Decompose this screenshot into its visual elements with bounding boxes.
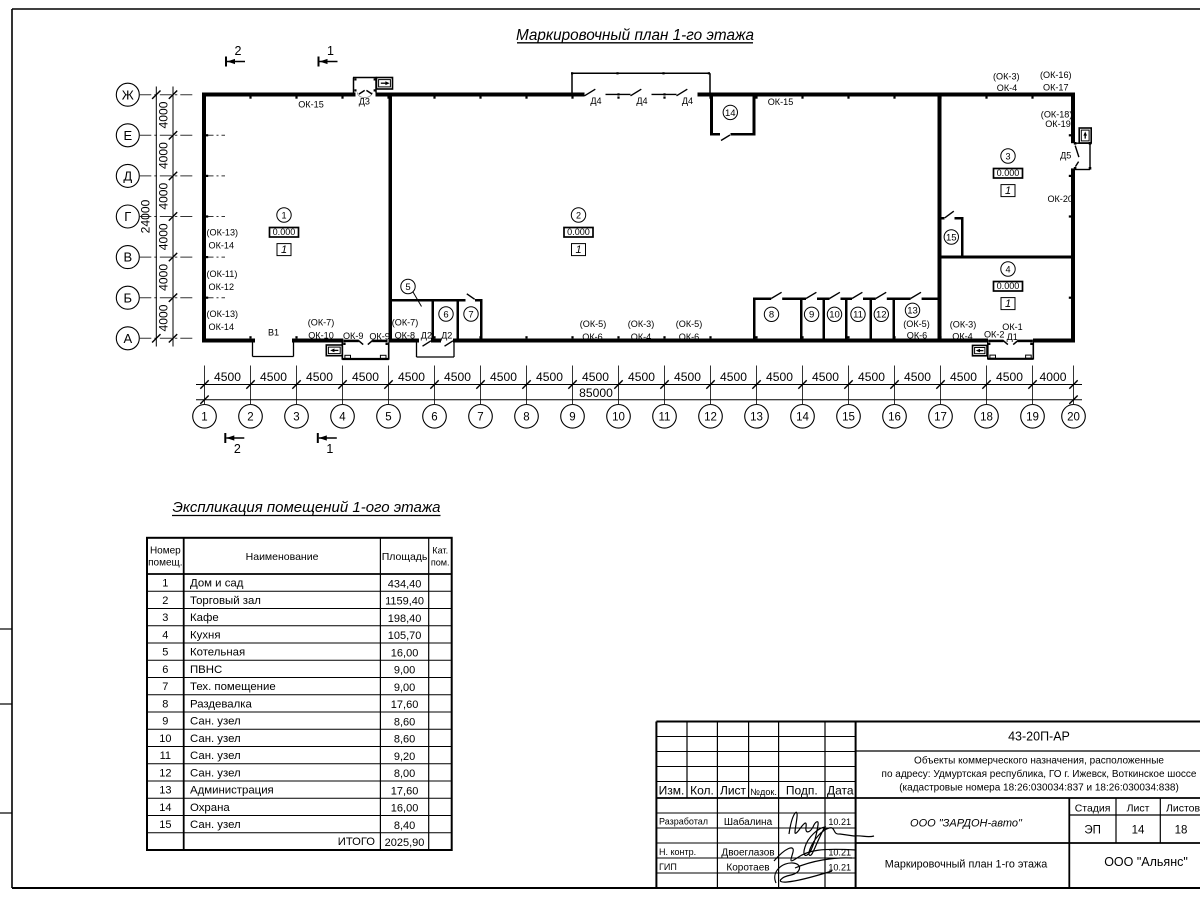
svg-text:Охрана: Охрана <box>190 802 230 814</box>
svg-text:4500: 4500 <box>628 370 655 384</box>
svg-text:8,60: 8,60 <box>394 734 415 746</box>
svg-text:4000: 4000 <box>156 304 170 331</box>
svg-text:ОК-4: ОК-4 <box>997 83 1017 93</box>
svg-text:3: 3 <box>162 612 168 624</box>
svg-text:4: 4 <box>339 411 346 423</box>
svg-text:43-20П-АР: 43-20П-АР <box>1008 730 1070 744</box>
svg-text:16: 16 <box>888 411 901 423</box>
svg-text:(ОК-3): (ОК-3) <box>993 72 1020 82</box>
svg-text:Д3: Д3 <box>359 96 370 106</box>
svg-text:4000: 4000 <box>156 264 170 291</box>
svg-text:Д4: Д4 <box>636 96 647 106</box>
svg-text:ОК-6: ОК-6 <box>582 332 602 342</box>
svg-text:0.000: 0.000 <box>273 227 296 237</box>
svg-text:20: 20 <box>1067 411 1080 423</box>
svg-text:105,70: 105,70 <box>388 630 422 642</box>
svg-text:Подп.: Подп. <box>786 784 818 798</box>
svg-text:15: 15 <box>159 819 171 831</box>
svg-text:4500: 4500 <box>444 370 471 384</box>
svg-text:2: 2 <box>576 210 581 220</box>
svg-text:Наименование: Наименование <box>246 551 319 563</box>
svg-text:(ОК-3): (ОК-3) <box>628 319 655 329</box>
svg-text:1: 1 <box>162 578 168 590</box>
svg-text:4500: 4500 <box>720 370 747 384</box>
svg-text:Д2: Д2 <box>441 330 452 340</box>
svg-text:11: 11 <box>160 750 171 762</box>
svg-text:17,60: 17,60 <box>391 699 419 711</box>
svg-text:4500: 4500 <box>352 370 379 384</box>
svg-text:ЭП: ЭП <box>1084 825 1101 837</box>
svg-text:5: 5 <box>162 647 168 659</box>
svg-text:ОК-15: ОК-15 <box>768 97 794 107</box>
svg-text:1159,40: 1159,40 <box>385 596 424 608</box>
svg-text:12: 12 <box>876 310 887 321</box>
svg-text:13: 13 <box>907 306 918 317</box>
svg-text:Шабалина: Шабалина <box>724 816 773 828</box>
svg-text:4500: 4500 <box>398 370 425 384</box>
svg-text:Котельная: Котельная <box>190 647 245 659</box>
svg-text:Изм.: Изм. <box>659 784 685 798</box>
svg-text:ОК-19: ОК-19 <box>1045 119 1071 129</box>
svg-text:7: 7 <box>468 309 473 320</box>
svg-text:4: 4 <box>162 629 168 641</box>
svg-text:19: 19 <box>1026 411 1039 423</box>
svg-text:17: 17 <box>934 411 947 423</box>
svg-text:Разработал: Разработал <box>659 817 708 827</box>
svg-text:8,40: 8,40 <box>394 820 415 832</box>
svg-text:1: 1 <box>327 44 334 58</box>
svg-text:4000: 4000 <box>1040 370 1067 384</box>
svg-text:9,20: 9,20 <box>394 751 415 763</box>
svg-text:8: 8 <box>162 698 168 710</box>
svg-text:Кол.: Кол. <box>690 784 714 798</box>
svg-text:(ОК-13): (ОК-13) <box>207 228 239 238</box>
svg-text:8,60: 8,60 <box>394 716 415 728</box>
svg-text:ОК-6: ОК-6 <box>679 332 699 342</box>
svg-text:15: 15 <box>946 232 957 243</box>
svg-text:Сан. узел: Сан. узел <box>190 819 241 831</box>
svg-text:Н. контр.: Н. контр. <box>659 847 696 857</box>
svg-text:3: 3 <box>293 411 299 423</box>
svg-text:434,40: 434,40 <box>388 578 422 590</box>
svg-text:Д5: Д5 <box>1060 151 1071 161</box>
svg-text:4000: 4000 <box>156 223 170 250</box>
svg-text:пом.: пом. <box>431 558 450 568</box>
svg-text:№док.: №док. <box>750 787 777 797</box>
svg-text:Сан. узел: Сан. узел <box>190 750 241 762</box>
svg-text:10: 10 <box>612 411 625 423</box>
svg-text:(ОК-18): (ОК-18) <box>1041 110 1073 120</box>
svg-text:10: 10 <box>159 733 171 745</box>
svg-text:12: 12 <box>704 411 717 423</box>
svg-text:2: 2 <box>235 44 242 58</box>
svg-text:9: 9 <box>809 310 814 321</box>
svg-text:0.000: 0.000 <box>567 227 590 237</box>
svg-text:В1: В1 <box>268 328 279 338</box>
svg-text:6: 6 <box>431 411 437 423</box>
svg-text:ОК-14: ОК-14 <box>209 241 235 251</box>
svg-text:В: В <box>123 250 132 265</box>
svg-text:4500: 4500 <box>674 370 701 384</box>
svg-text:(ОК-5): (ОК-5) <box>676 319 703 329</box>
svg-text:12: 12 <box>159 767 171 779</box>
svg-text:ОК-20: ОК-20 <box>1047 194 1073 204</box>
svg-text:2: 2 <box>234 442 241 456</box>
svg-text:ОК-1: ОК-1 <box>1002 322 1022 332</box>
svg-text:2025,90: 2025,90 <box>385 837 425 849</box>
svg-text:ООО "ЗАРДОН-авто": ООО "ЗАРДОН-авто" <box>910 818 1023 830</box>
svg-text:5: 5 <box>405 282 410 293</box>
svg-text:2: 2 <box>247 411 253 423</box>
svg-text:9: 9 <box>162 716 168 728</box>
svg-text:(ОК-16): (ОК-16) <box>1040 70 1072 80</box>
svg-text:Кат.: Кат. <box>432 546 448 556</box>
svg-text:1: 1 <box>201 411 207 423</box>
svg-text:ОК-6: ОК-6 <box>907 331 927 341</box>
svg-text:Кухня: Кухня <box>190 629 221 641</box>
svg-text:Лист: Лист <box>1127 803 1150 815</box>
svg-text:4500: 4500 <box>996 370 1023 384</box>
svg-text:18: 18 <box>1175 825 1188 837</box>
svg-text:4500: 4500 <box>260 370 287 384</box>
svg-text:(ОК-5): (ОК-5) <box>580 319 607 329</box>
svg-text:1: 1 <box>326 442 333 456</box>
svg-text:Маркировочный план 1-го этажа: Маркировочный план 1-го этажа <box>885 859 1047 871</box>
svg-text:ОК-15: ОК-15 <box>298 99 324 109</box>
svg-text:Дом и сад: Дом и сад <box>190 578 244 590</box>
svg-text:10.21: 10.21 <box>828 817 851 827</box>
svg-text:13: 13 <box>750 411 763 423</box>
svg-text:11: 11 <box>659 411 671 423</box>
svg-text:3: 3 <box>1005 151 1010 161</box>
svg-text:ОК-4: ОК-4 <box>631 332 651 342</box>
svg-text:ОК-14: ОК-14 <box>209 322 235 332</box>
svg-text:Администрация: Администрация <box>190 785 274 797</box>
svg-text:8: 8 <box>769 310 774 321</box>
svg-text:198,40: 198,40 <box>388 613 422 625</box>
svg-text:2: 2 <box>162 595 168 607</box>
svg-text:Д4: Д4 <box>590 96 601 106</box>
svg-text:Объекты коммерческого назначен: Объекты коммерческого назначения, распол… <box>914 755 1164 767</box>
svg-text:ИТОГО: ИТОГО <box>338 836 376 848</box>
svg-text:14: 14 <box>725 108 736 119</box>
svg-text:Д4: Д4 <box>682 96 693 106</box>
svg-text:Д: Д <box>123 169 132 184</box>
svg-text:ГИП: ГИП <box>659 862 677 872</box>
svg-text:15: 15 <box>842 411 855 423</box>
svg-text:1: 1 <box>575 244 581 256</box>
svg-text:Б: Б <box>124 290 133 305</box>
svg-text:4000: 4000 <box>156 182 170 209</box>
svg-text:18: 18 <box>980 411 993 423</box>
svg-text:14: 14 <box>1132 825 1145 837</box>
svg-text:ООО "Альянс": ООО "Альянс" <box>1104 855 1188 869</box>
svg-text:по адресу: Удмуртская республи: по адресу: Удмуртская республика, ГО г. … <box>882 768 1197 780</box>
svg-text:(кадастровые номера 18:26:0300: (кадастровые номера 18:26:030034:837 и 1… <box>899 783 1179 794</box>
svg-text:(ОК-5): (ОК-5) <box>903 319 930 329</box>
svg-text:А: А <box>123 331 132 346</box>
svg-text:0.000: 0.000 <box>997 168 1020 178</box>
svg-text:4500: 4500 <box>950 370 977 384</box>
svg-text:0.000: 0.000 <box>997 281 1020 291</box>
svg-text:6: 6 <box>162 664 168 676</box>
svg-text:13: 13 <box>159 785 171 797</box>
svg-text:Сан. узел: Сан. узел <box>190 767 241 779</box>
svg-text:6: 6 <box>443 309 448 320</box>
svg-text:ОК-9: ОК-9 <box>343 331 363 341</box>
svg-text:(ОК-7): (ОК-7) <box>392 317 419 327</box>
svg-text:Д1: Д1 <box>1007 332 1018 342</box>
svg-text:9,00: 9,00 <box>394 682 415 694</box>
svg-text:ПВНС: ПВНС <box>190 664 222 676</box>
svg-text:ОК-12: ОК-12 <box>209 282 235 292</box>
svg-text:7: 7 <box>162 681 168 693</box>
svg-text:8: 8 <box>523 411 529 423</box>
svg-text:Двоеглазов: Двоеглазов <box>721 848 774 859</box>
svg-text:помещ.: помещ. <box>148 558 182 569</box>
svg-text:Сан. узел: Сан. узел <box>190 733 241 745</box>
svg-text:1: 1 <box>281 210 286 220</box>
svg-text:ОК-4: ОК-4 <box>952 332 972 342</box>
svg-text:1: 1 <box>1005 298 1011 310</box>
svg-text:Г: Г <box>124 209 131 224</box>
svg-text:Тех. помещение: Тех. помещение <box>190 681 276 693</box>
svg-text:11: 11 <box>853 310 863 321</box>
svg-text:5: 5 <box>385 411 391 423</box>
svg-text:4000: 4000 <box>156 142 170 169</box>
svg-text:9,00: 9,00 <box>394 665 415 677</box>
svg-text:9: 9 <box>569 411 575 423</box>
svg-text:4: 4 <box>1005 264 1010 274</box>
svg-text:Маркировочный план 1-го этажа: Маркировочный план 1-го этажа <box>516 27 754 44</box>
svg-text:Коротаев: Коротаев <box>726 863 769 874</box>
svg-text:Торговый зал: Торговый зал <box>190 595 261 607</box>
svg-text:1: 1 <box>281 244 287 256</box>
svg-text:4500: 4500 <box>490 370 517 384</box>
svg-text:85000: 85000 <box>579 386 613 400</box>
svg-text:4500: 4500 <box>582 370 609 384</box>
svg-text:(ОК-3): (ОК-3) <box>950 320 977 330</box>
svg-text:24000: 24000 <box>139 199 153 233</box>
svg-text:4500: 4500 <box>812 370 839 384</box>
svg-text:(ОК-7): (ОК-7) <box>308 317 335 327</box>
svg-text:Дата: Дата <box>827 784 854 798</box>
svg-text:Стадия: Стадия <box>1075 803 1111 815</box>
svg-text:17,60: 17,60 <box>391 785 419 797</box>
svg-text:Сан. узел: Сан. узел <box>190 716 241 728</box>
svg-text:4500: 4500 <box>766 370 793 384</box>
svg-text:Е: Е <box>123 128 132 143</box>
svg-text:Номер: Номер <box>150 546 181 557</box>
svg-text:Экспликация помещений 1-ого эт: Экспликация помещений 1-ого этажа <box>173 499 441 516</box>
svg-text:(ОК-13): (ОК-13) <box>207 309 239 319</box>
svg-text:1: 1 <box>1005 185 1011 197</box>
svg-text:4000: 4000 <box>156 101 170 128</box>
svg-text:14: 14 <box>796 411 809 423</box>
svg-text:4500: 4500 <box>536 370 563 384</box>
svg-text:14: 14 <box>159 802 171 814</box>
svg-text:4500: 4500 <box>904 370 931 384</box>
svg-text:Листов: Листов <box>1166 803 1200 815</box>
svg-text:ОК-9: ОК-9 <box>369 331 389 341</box>
svg-text:4500: 4500 <box>306 370 333 384</box>
svg-text:4500: 4500 <box>214 370 241 384</box>
svg-text:Раздевалка: Раздевалка <box>190 698 253 710</box>
svg-text:10: 10 <box>829 310 840 321</box>
svg-text:ОК-17: ОК-17 <box>1043 83 1069 93</box>
svg-text:16,00: 16,00 <box>391 647 419 659</box>
svg-text:4500: 4500 <box>858 370 885 384</box>
svg-text:ОК-10: ОК-10 <box>308 330 334 340</box>
svg-text:(ОК-11): (ОК-11) <box>207 269 238 279</box>
svg-text:16,00: 16,00 <box>391 803 419 815</box>
svg-text:Д2: Д2 <box>421 330 432 340</box>
svg-text:7: 7 <box>477 411 483 423</box>
svg-text:ОК-8: ОК-8 <box>395 330 415 340</box>
svg-text:Ж: Ж <box>122 87 134 102</box>
svg-text:Площадь: Площадь <box>382 551 428 563</box>
svg-text:Лист: Лист <box>720 784 747 798</box>
svg-text:Кафе: Кафе <box>190 612 219 624</box>
svg-text:8,00: 8,00 <box>394 768 415 780</box>
